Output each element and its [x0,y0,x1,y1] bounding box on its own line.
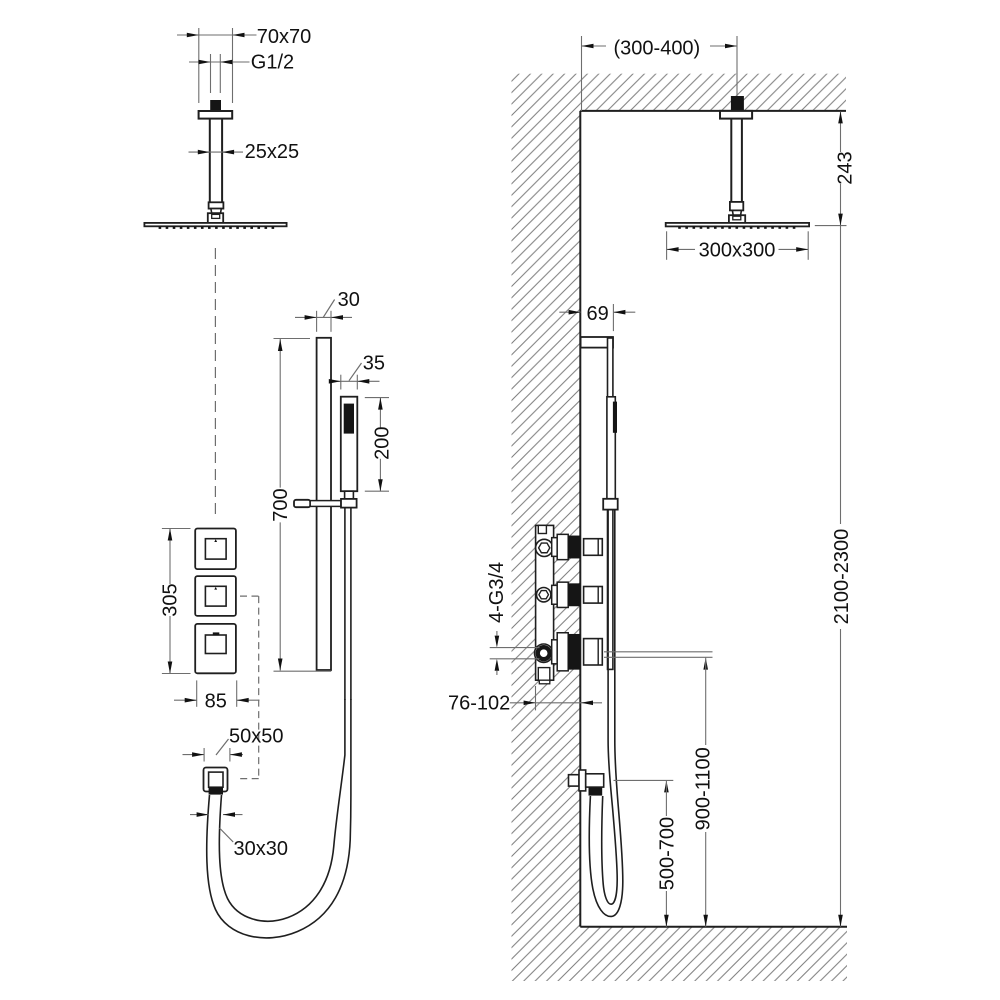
svg-text:50x50: 50x50 [229,726,284,748]
svg-text:200: 200 [371,427,393,460]
svg-text:4-G3/4: 4-G3/4 [486,562,508,623]
svg-text:500-700: 500-700 [657,817,679,890]
svg-text:35: 35 [363,353,385,375]
svg-text:69: 69 [587,303,609,325]
svg-text:305: 305 [160,583,182,616]
svg-text:70x70: 70x70 [257,26,312,48]
svg-text:30x30: 30x30 [234,838,289,860]
svg-text:300x300: 300x300 [699,239,776,261]
svg-text:85: 85 [205,691,227,713]
svg-text:2100-2300: 2100-2300 [831,529,853,625]
svg-text:700: 700 [270,488,292,521]
svg-text:G1/2: G1/2 [251,52,294,74]
svg-text:25x25: 25x25 [245,141,300,163]
svg-text:76-102: 76-102 [448,693,510,715]
svg-text:(300-400): (300-400) [614,38,701,60]
svg-text:243: 243 [835,151,857,184]
svg-text:30: 30 [338,289,360,311]
svg-text:900-1100: 900-1100 [692,747,714,830]
